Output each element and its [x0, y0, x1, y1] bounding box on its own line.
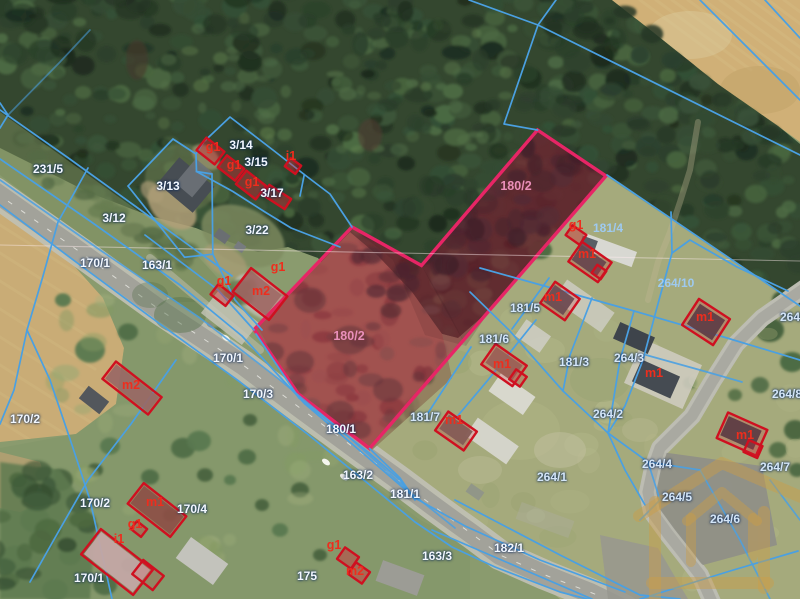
svg-text:181/7: 181/7: [410, 410, 440, 424]
svg-text:m1: m1: [544, 290, 562, 304]
svg-text:170/1: 170/1: [74, 571, 104, 585]
svg-text:264/10: 264/10: [658, 276, 695, 290]
svg-text:g1: g1: [245, 175, 260, 189]
svg-text:182/1: 182/1: [494, 541, 524, 555]
svg-text:170/2: 170/2: [10, 412, 40, 426]
svg-text:m2: m2: [122, 378, 140, 392]
svg-text:264/1: 264/1: [537, 470, 567, 484]
svg-text:264/6: 264/6: [710, 512, 740, 526]
svg-text:163/1: 163/1: [142, 258, 172, 272]
svg-text:175: 175: [297, 569, 317, 583]
svg-text:m1: m1: [445, 413, 463, 427]
svg-text:264/8: 264/8: [780, 310, 800, 324]
svg-text:3/15: 3/15: [244, 155, 268, 169]
svg-text:g1: g1: [128, 517, 143, 531]
svg-text:181/1: 181/1: [390, 487, 420, 501]
svg-text:170/1: 170/1: [213, 351, 243, 365]
svg-text:g1: g1: [271, 260, 286, 274]
svg-text:i1: i1: [114, 532, 124, 546]
svg-text:264/2: 264/2: [593, 407, 623, 421]
svg-text:231/5: 231/5: [33, 162, 63, 176]
svg-text:264/3: 264/3: [614, 351, 644, 365]
svg-text:m1: m1: [578, 247, 596, 261]
svg-text:170/2: 170/2: [80, 496, 110, 510]
svg-text:m1: m1: [696, 310, 714, 324]
svg-text:3/13: 3/13: [156, 179, 180, 193]
svg-text:180/2: 180/2: [500, 179, 531, 193]
svg-text:m1: m1: [736, 428, 754, 442]
svg-text:g1: g1: [569, 218, 584, 232]
svg-text:3/12: 3/12: [102, 211, 126, 225]
svg-text:264/8: 264/8: [772, 387, 800, 401]
svg-text:264/7: 264/7: [760, 460, 790, 474]
svg-text:g1: g1: [327, 538, 342, 552]
svg-text:3/17: 3/17: [260, 186, 284, 200]
svg-text:m2: m2: [252, 284, 270, 298]
svg-text:170/3: 170/3: [243, 387, 273, 401]
svg-text:163/2: 163/2: [343, 468, 373, 482]
svg-text:170/1: 170/1: [80, 256, 110, 270]
svg-text:m1: m1: [493, 357, 511, 371]
svg-text:3/22: 3/22: [245, 223, 269, 237]
svg-text:170/4: 170/4: [177, 502, 207, 516]
svg-text:181/5: 181/5: [510, 301, 540, 315]
svg-text:g1: g1: [206, 140, 221, 154]
svg-text:181/4: 181/4: [593, 221, 623, 235]
svg-text:181/3: 181/3: [559, 355, 589, 369]
svg-text:180/1: 180/1: [326, 422, 356, 436]
svg-text:180/2: 180/2: [333, 329, 364, 343]
svg-text:i1: i1: [286, 149, 296, 163]
svg-text:163/3: 163/3: [422, 549, 452, 563]
svg-text:m1: m1: [146, 495, 164, 509]
svg-text:g1: g1: [227, 158, 242, 172]
svg-text:181/6: 181/6: [479, 332, 509, 346]
svg-text:g1: g1: [217, 274, 232, 288]
svg-text:3/14: 3/14: [229, 138, 253, 152]
svg-text:m1: m1: [645, 366, 663, 380]
svg-text:m2: m2: [346, 564, 364, 578]
svg-text:264/4: 264/4: [642, 457, 672, 471]
svg-text:264/5: 264/5: [662, 490, 692, 504]
